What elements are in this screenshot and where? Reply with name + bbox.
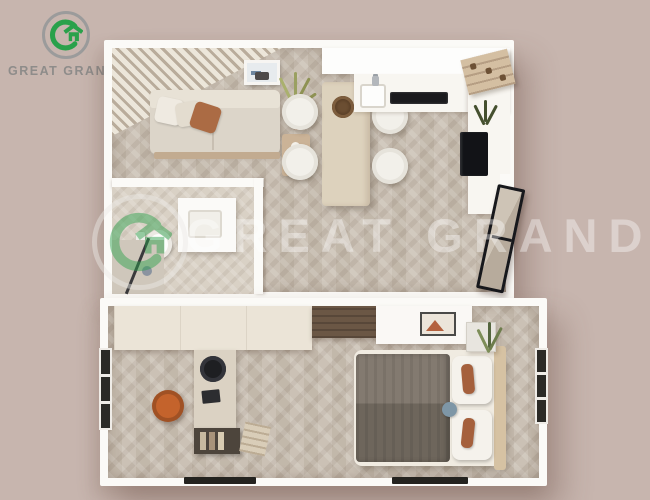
dining-chair <box>282 94 318 130</box>
bedroom-plant <box>478 320 508 360</box>
wall-art-print <box>255 72 269 80</box>
orange-accent-chair <box>152 390 184 422</box>
bathroom-wall <box>254 178 263 294</box>
double-bed <box>354 350 504 466</box>
book <box>200 432 206 450</box>
floorplan-render: { "brand": { "name": "GREAT GRANDE" }, "… <box>0 0 650 500</box>
house-g-icon <box>49 18 83 52</box>
brand-logo-icon <box>42 11 90 59</box>
module-bedroom-office <box>100 298 547 486</box>
headboard <box>494 346 506 470</box>
wardrobe <box>114 306 312 350</box>
faucet-icon <box>372 76 379 86</box>
office-window <box>99 348 112 430</box>
art-mountain-print <box>426 320 444 331</box>
basket-centerpiece <box>332 96 354 118</box>
kitchen-plant <box>472 96 502 132</box>
door-crossbar <box>492 235 512 242</box>
round-blue-pillow <box>442 402 457 417</box>
bedroom-window <box>535 348 548 424</box>
refrigerator <box>460 132 488 176</box>
floor-plan <box>100 34 547 486</box>
terracotta-lumbar-pillow <box>461 364 476 395</box>
bottom-wall-window <box>392 477 468 484</box>
bathroom-wall <box>112 178 264 187</box>
dark-wood-partition <box>312 306 376 338</box>
cooktop <box>390 92 448 104</box>
sofa-wood-base <box>154 152 280 159</box>
sofa <box>150 90 280 154</box>
bookshelf <box>194 428 240 454</box>
book <box>209 432 215 450</box>
shower <box>112 240 164 294</box>
module-living-kitchen <box>104 40 514 300</box>
bedroom-wall-art <box>420 312 456 336</box>
gray-blanket <box>356 354 450 462</box>
desk-stool <box>200 356 226 382</box>
bathroom-vanity <box>178 198 236 252</box>
dining-chair <box>372 148 408 184</box>
living-wall-art <box>244 60 280 85</box>
bottom-wall-window <box>184 477 256 484</box>
laptop <box>201 389 220 404</box>
kitchen-sink <box>360 84 386 108</box>
book <box>218 432 224 450</box>
vanity-basin <box>188 210 222 238</box>
dining-chair <box>282 144 318 180</box>
shower-head-icon <box>142 266 152 276</box>
